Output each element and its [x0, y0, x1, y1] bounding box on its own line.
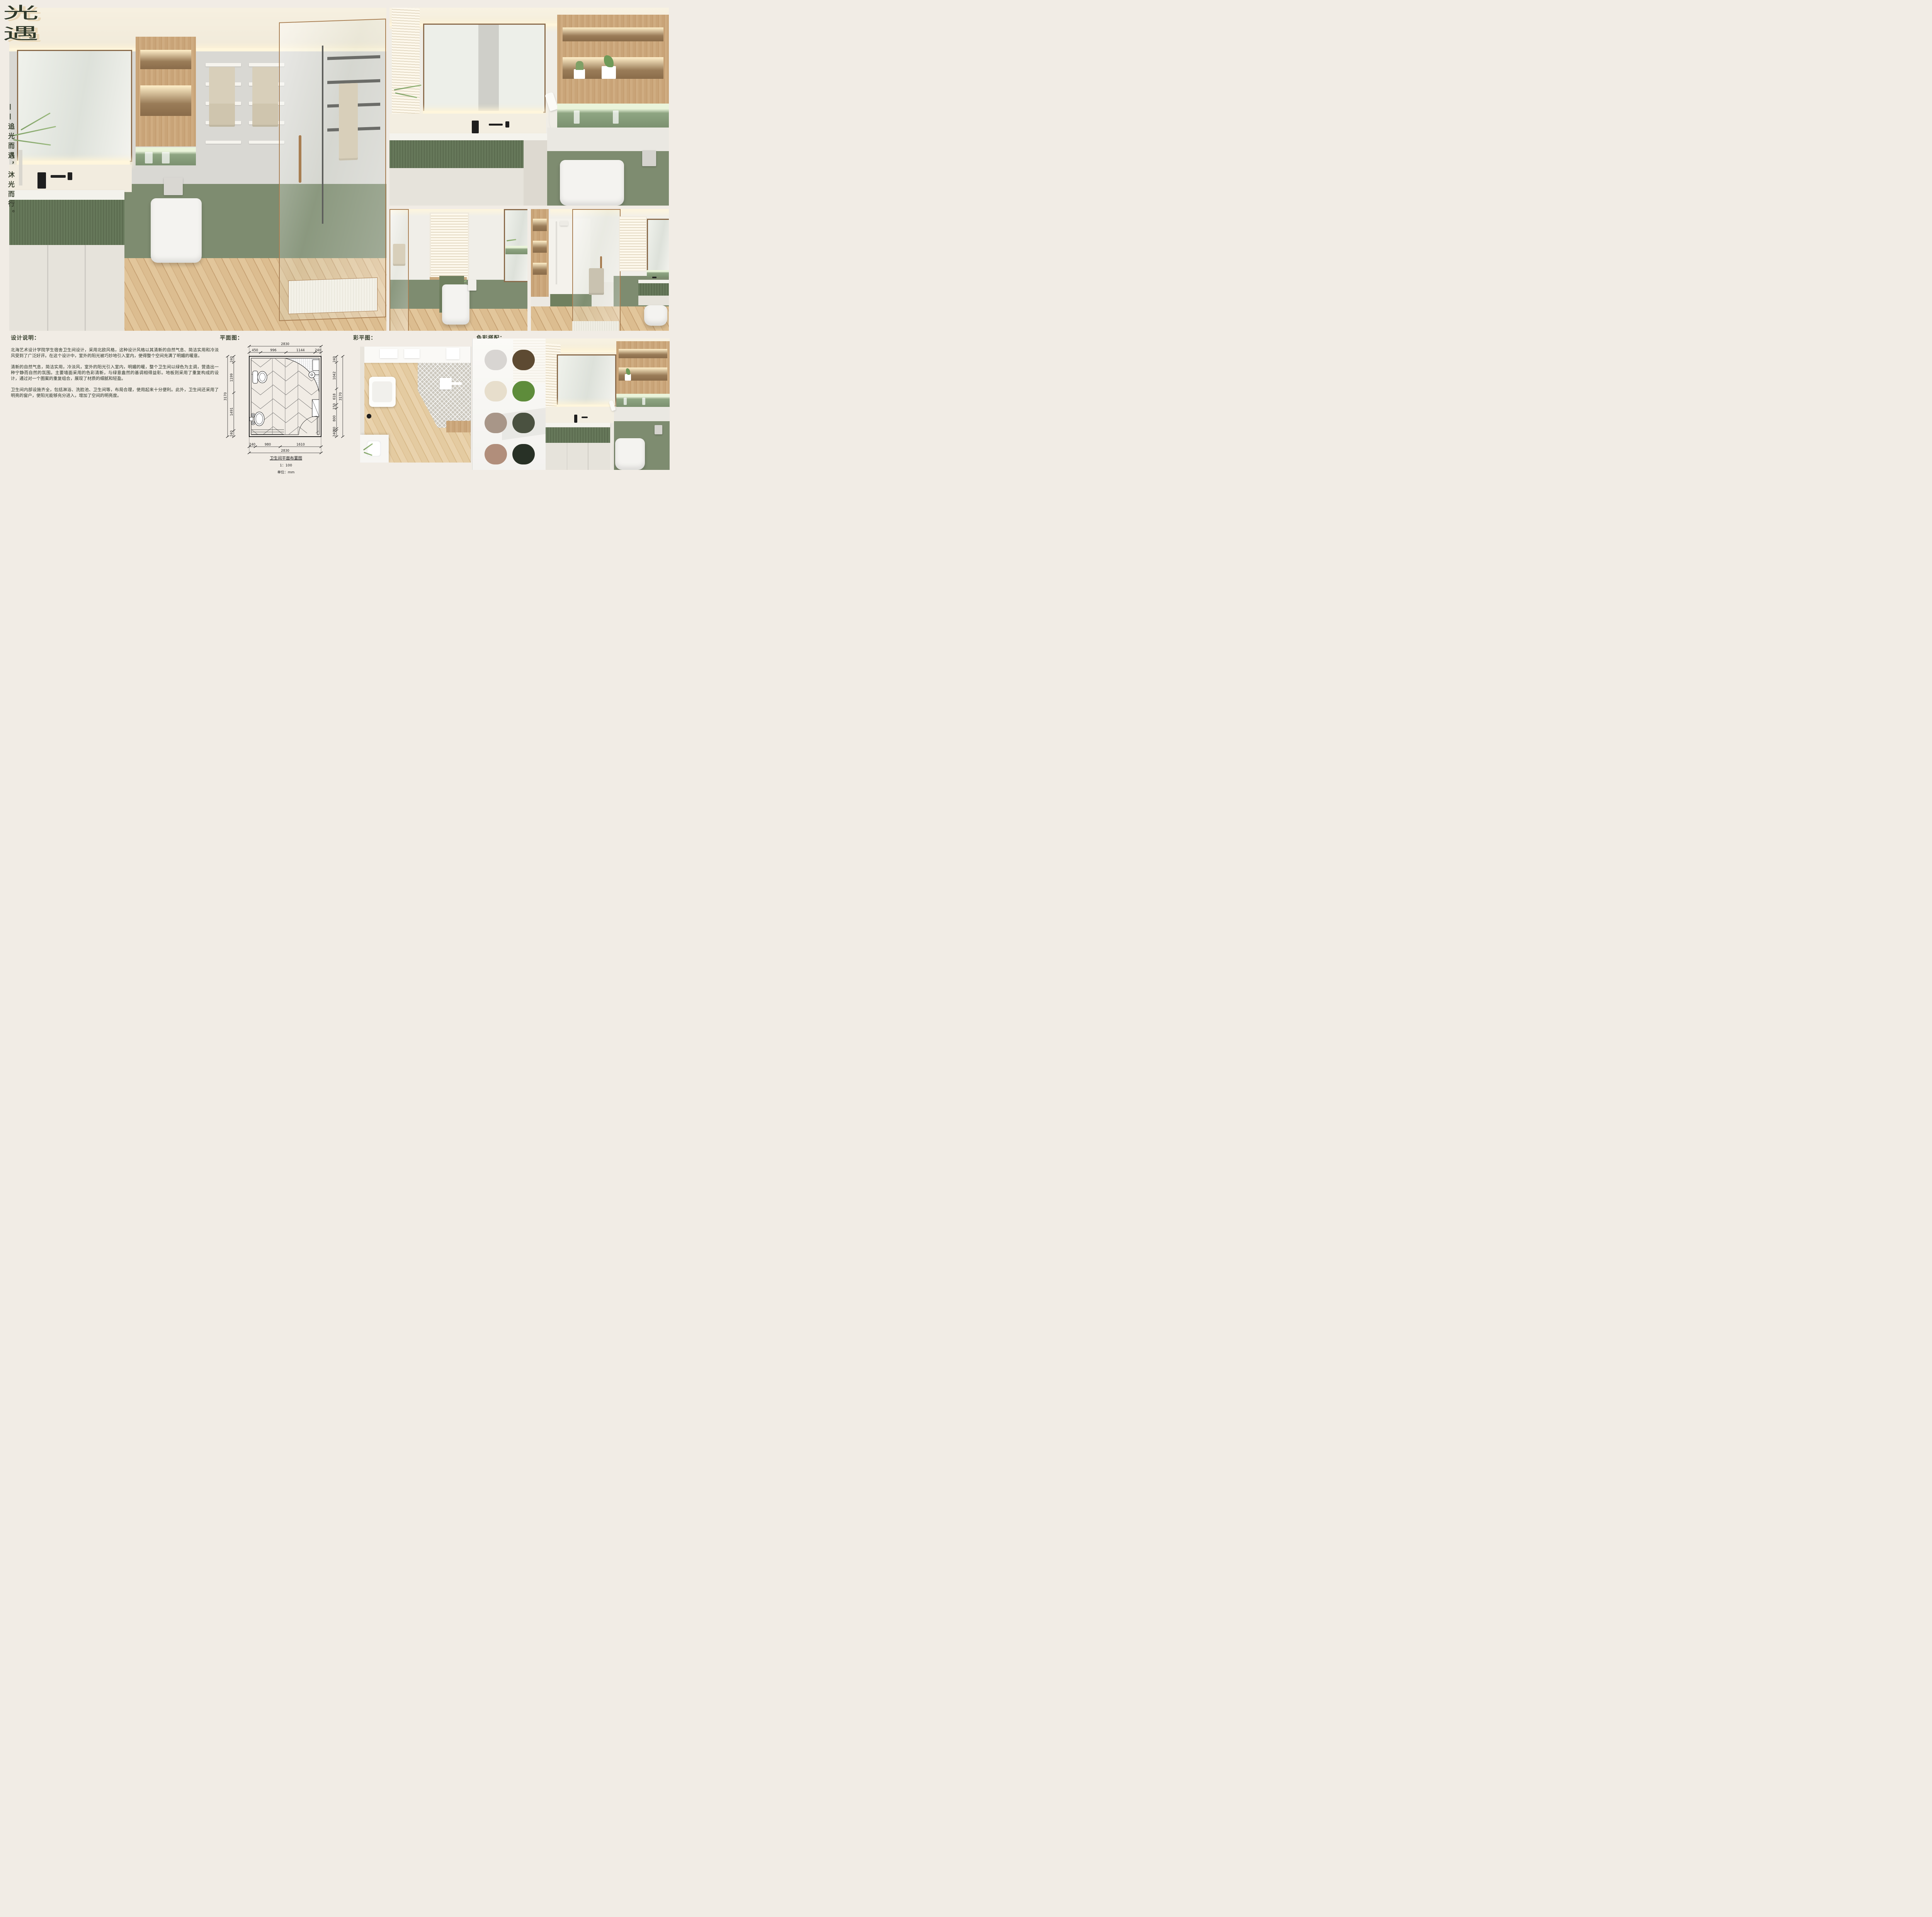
- svg-text:3170: 3170: [224, 392, 228, 401]
- faucet-valve: [68, 172, 72, 180]
- wall-faucet: [582, 417, 588, 418]
- succulent-plant: [576, 61, 583, 70]
- towel-peg: [206, 63, 241, 66]
- flush-plate: [468, 280, 476, 291]
- toothbrush-glass: [574, 111, 579, 123]
- svg-text:1199: 1199: [230, 373, 234, 382]
- window-blinds: [430, 213, 469, 279]
- toothbrush-niche: [505, 246, 527, 254]
- wall-fixture: [446, 348, 459, 359]
- mirror: [557, 354, 616, 407]
- shower-glass-panel: [389, 209, 409, 331]
- palette-swatch-warm-taupe: [485, 413, 507, 433]
- svg-text:3170: 3170: [339, 392, 343, 401]
- toothbrush-glass: [145, 152, 153, 163]
- shower-head: [560, 221, 568, 226]
- towel: [339, 83, 358, 161]
- toothbrush-glass: [162, 152, 170, 163]
- door-seam: [85, 245, 86, 331]
- svg-text:2830: 2830: [281, 449, 289, 453]
- cabinet-shelf: [140, 50, 192, 69]
- board-title: 光 遇: [3, 2, 19, 44]
- plan-caption-title: 卫生间平面布置图: [222, 455, 350, 461]
- towel-peg: [206, 141, 241, 144]
- shower-tile-floor: [418, 363, 471, 428]
- shelf-recess: [533, 241, 547, 253]
- toothbrush-niche: [647, 270, 669, 277]
- shower-tray: [288, 278, 378, 315]
- shelf-recess: [533, 219, 547, 231]
- shower-arm: [452, 382, 462, 385]
- toothbrush-glass: [624, 398, 627, 405]
- palette-swatch-warm-cream: [485, 381, 507, 401]
- toilet: [615, 438, 645, 470]
- floor-drain: [367, 414, 371, 418]
- svg-text:150: 150: [333, 403, 337, 410]
- description-paragraph: 卫生间内部设施齐全，包括淋浴、洗脸池、卫生间等，布局合理，使用起来十分便利。此外…: [11, 387, 219, 398]
- vanity-fluted-front: [638, 283, 669, 296]
- white-wall-band: [547, 128, 669, 151]
- toilet-paper-holder: [642, 150, 656, 166]
- floor-plan-heading: 平面图：: [220, 334, 243, 342]
- mirror-backlight: [557, 405, 614, 407]
- design-description: 北海艺术设计学院学生宿舍卫生间设计，采用北欧风格，这种设计风格以其清新的自然气息…: [11, 347, 219, 404]
- mirror: [647, 219, 669, 272]
- towel-rack: [206, 61, 241, 158]
- title-char-guang: 光: [3, 2, 39, 23]
- toothbrush-glass: [613, 111, 618, 123]
- svg-text:80: 80: [333, 427, 337, 431]
- vanity-doors: [546, 443, 610, 470]
- title-char-yu: 遇: [3, 23, 39, 44]
- mirror-backlight: [423, 111, 543, 114]
- svg-text:450: 450: [252, 349, 258, 352]
- toilet: [442, 284, 469, 325]
- floor-plan-drawing: 2830 450 996 1144 240 240 980 1610 2830 …: [222, 342, 350, 458]
- shower-enclosure: [279, 19, 386, 321]
- description-paragraph: 北海艺术设计学院学生宿舍卫生间设计，采用北欧风格，这种设计风格以其清新的自然气息…: [11, 347, 219, 359]
- design-board: 光 遇 ——追光而遇，沐光而行。: [0, 0, 678, 479]
- mirror: [17, 50, 133, 162]
- backsplash: [389, 114, 546, 133]
- svg-text:240: 240: [230, 430, 234, 437]
- vanity-fluted-front: [546, 427, 610, 443]
- mirror-backlight: [17, 161, 130, 165]
- render-vanity-detail: [546, 338, 670, 470]
- wall-faucet: [652, 277, 656, 278]
- wall-fixture: [380, 349, 398, 358]
- render-main-bathroom: [9, 8, 386, 331]
- black-jar: [37, 172, 46, 189]
- palette-swatch-olive-green: [512, 413, 535, 433]
- towel: [252, 104, 278, 127]
- description-paragraph: 清新的自然气息，简洁实用，冷淡风，室外的阳光引入室内，明媚的暖，整个卫生间以绿色…: [11, 364, 219, 381]
- plan-caption-unit: 单位：mm: [222, 469, 350, 475]
- plan-sink: [250, 412, 264, 426]
- vanity-counter: [638, 280, 669, 283]
- palette-swatch-light-warm-gray: [485, 350, 507, 370]
- vanity-doors: [638, 296, 669, 305]
- plant-pot: [625, 374, 631, 381]
- toilet: [151, 198, 202, 263]
- svg-text:980: 980: [265, 443, 271, 447]
- vanity-side-panel: [524, 140, 547, 206]
- flush-plate: [164, 177, 183, 195]
- svg-text:240: 240: [333, 430, 337, 437]
- svg-text:240: 240: [230, 356, 234, 362]
- svg-text:1491: 1491: [230, 407, 234, 416]
- vanity-counter: [546, 423, 610, 427]
- svg-text:1144: 1144: [296, 349, 305, 352]
- toilet-paper-holder: [655, 425, 662, 434]
- toilet: [560, 160, 624, 206]
- window-blinds: [619, 216, 647, 272]
- svg-text:240: 240: [315, 349, 321, 352]
- palette-backdrop: [472, 338, 546, 470]
- color-plan-image: [360, 347, 471, 463]
- towel: [209, 104, 235, 127]
- wall-faucet: [51, 175, 66, 178]
- vanity-fluted-front: [389, 140, 524, 168]
- plant-pot: [602, 66, 616, 79]
- shelf-recess: [533, 263, 547, 275]
- vanity-counter: [9, 190, 124, 200]
- mirror: [423, 24, 546, 113]
- cabinet-shelf: [619, 349, 667, 358]
- flower-vase: [19, 150, 22, 185]
- palette-swatch-dark-umber-brown: [512, 350, 535, 370]
- svg-text:996: 996: [270, 349, 276, 352]
- wood-counter-top-view: [446, 421, 471, 432]
- render-toilet-window: [389, 209, 527, 331]
- door-seam: [567, 443, 568, 470]
- door-seam: [47, 245, 48, 331]
- svg-text:1610: 1610: [296, 443, 305, 447]
- wall-fixture: [404, 349, 420, 358]
- cabinet-shelf: [563, 27, 663, 41]
- vanity-counter: [389, 133, 547, 140]
- window-blinds: [392, 8, 420, 115]
- plant-pot: [574, 69, 585, 79]
- toothbrush-glass: [642, 398, 645, 405]
- cabinet-shelf: [140, 85, 192, 116]
- white-wall-band: [614, 407, 670, 421]
- wall-faucet: [489, 124, 503, 126]
- svg-text:1042: 1042: [333, 371, 337, 380]
- towel: [589, 268, 604, 295]
- faucet-valve: [505, 121, 509, 127]
- toilet-lid: [372, 381, 392, 402]
- render-shower-corridor: [531, 209, 669, 331]
- shower-glass-door: [572, 209, 621, 331]
- vanity-doors: [9, 245, 124, 331]
- shower-tray: [572, 321, 619, 331]
- backsplash: [546, 407, 614, 423]
- shower-head-top-view: [440, 378, 452, 390]
- floor-plan-captions: 卫生间平面布置图 1：100 单位：mm: [222, 455, 350, 475]
- palette-swatch-leaf-green: [512, 381, 535, 401]
- svg-text:800: 800: [333, 415, 337, 422]
- description-heading: 设计说明：: [11, 334, 40, 342]
- render-vanity-toilet: [389, 8, 669, 206]
- palette-swatch-deep-forest-green: [512, 444, 535, 464]
- palette-swatch-rosy-brown: [485, 444, 507, 464]
- color-plan-heading: 彩平图：: [353, 334, 376, 342]
- door-handle: [299, 136, 301, 183]
- svg-text:240: 240: [333, 356, 337, 362]
- plan-caption-scale: 1：100: [222, 463, 350, 468]
- svg-text:240: 240: [249, 443, 255, 447]
- black-jar: [574, 415, 577, 422]
- shower-rail: [556, 221, 557, 285]
- board-subtitle: ——追光而遇，沐光而行。: [6, 104, 15, 237]
- svg-text:2830: 2830: [281, 342, 289, 346]
- toilet: [644, 305, 668, 326]
- plan-toilet: [253, 371, 267, 383]
- towel-rail: [327, 55, 380, 60]
- towel: [393, 244, 405, 266]
- door-seam: [588, 443, 588, 470]
- vanity-fluted-front: [9, 200, 124, 245]
- vanity-doors: [389, 168, 524, 206]
- plan-cabinet: [312, 400, 319, 417]
- shower-rail: [322, 46, 323, 224]
- black-jar: [472, 121, 478, 133]
- svg-text:618: 618: [333, 393, 337, 400]
